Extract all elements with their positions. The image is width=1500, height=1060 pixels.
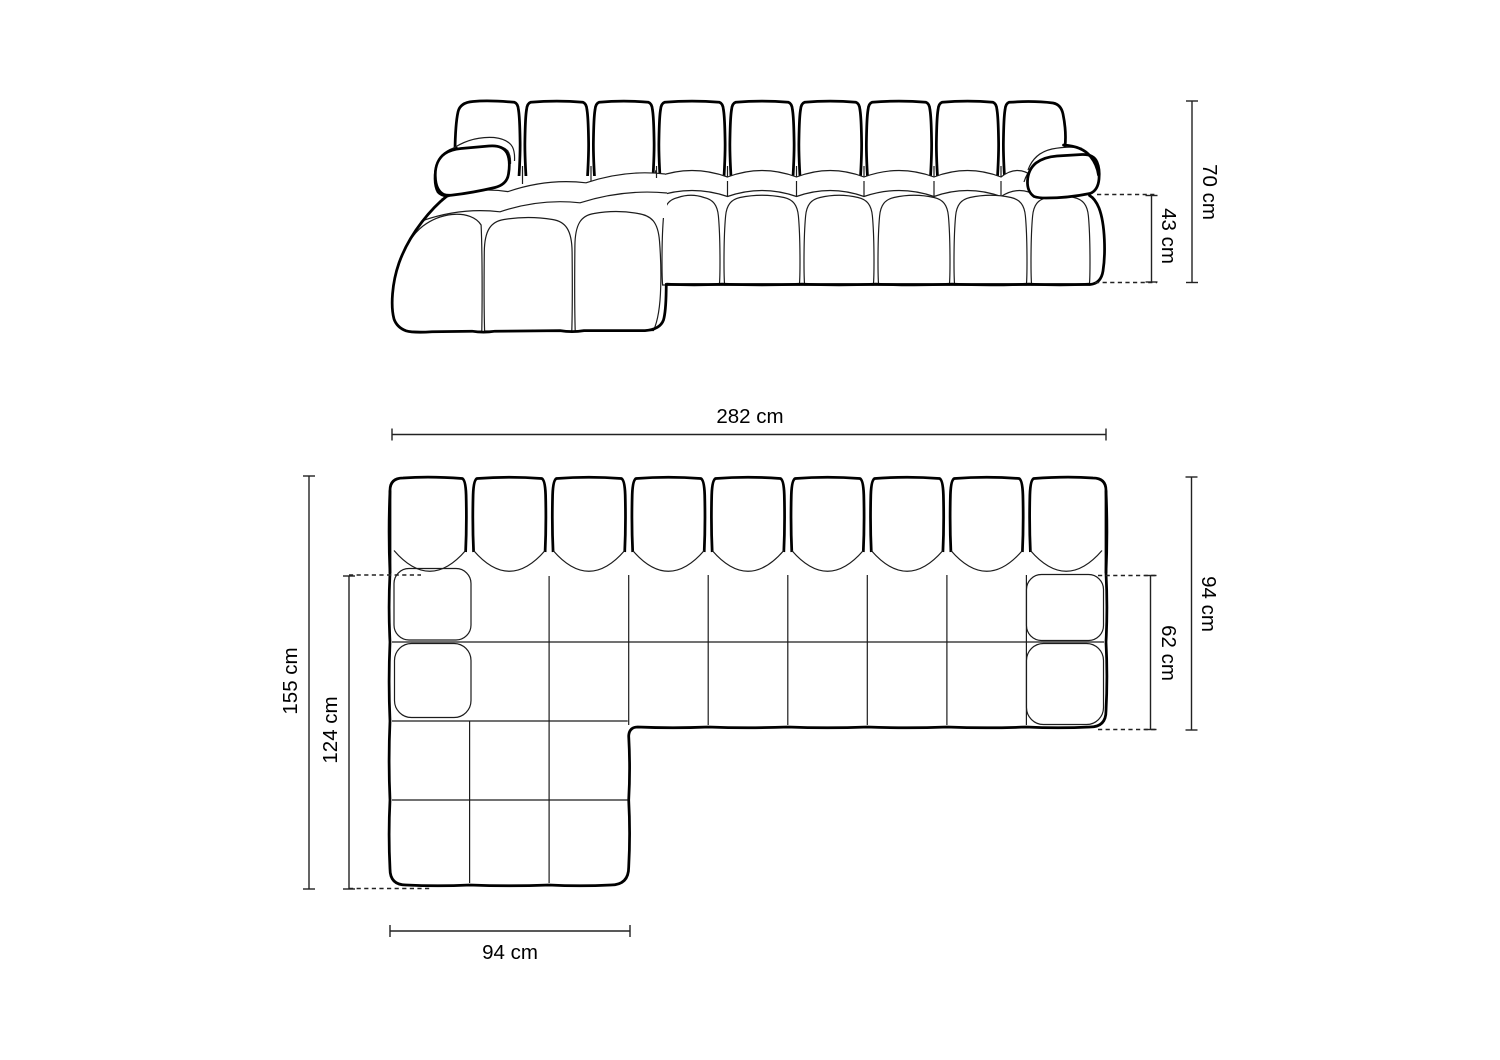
svg-text:94 cm: 94 cm (1197, 576, 1220, 632)
svg-text:282 cm: 282 cm (716, 405, 783, 428)
svg-text:70 cm: 70 cm (1198, 164, 1221, 220)
svg-text:124 cm: 124 cm (319, 696, 342, 763)
svg-text:155 cm: 155 cm (279, 647, 302, 714)
svg-text:62 cm: 62 cm (1157, 625, 1180, 681)
svg-text:43 cm: 43 cm (1157, 208, 1180, 264)
svg-text:94 cm: 94 cm (482, 941, 538, 964)
